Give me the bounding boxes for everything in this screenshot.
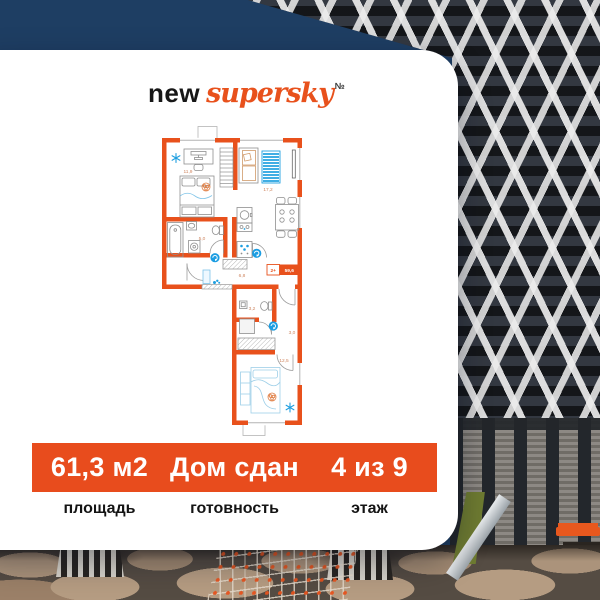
- door-marker[interactable]: [210, 253, 219, 262]
- info-bar: 61,3 м2 Дом сдан 4 из 9: [32, 443, 437, 492]
- bathroom-furniture: [168, 222, 224, 258]
- walls: [162, 138, 302, 425]
- orange-bench: [556, 527, 600, 536]
- floor-value: 4 из 9: [302, 452, 437, 483]
- room-area-label: 6,8: [239, 273, 246, 279]
- climbing-net: [207, 548, 358, 600]
- balcony-bottom: [243, 425, 265, 436]
- area-label: площадь: [32, 500, 167, 518]
- bedroom-1-furniture: [180, 149, 214, 217]
- screenshot-root: new supersky №: [0, 0, 600, 600]
- snowflake-icon: [172, 154, 180, 163]
- kitchen-unit-blue: [262, 151, 280, 183]
- snowflake-icon: [286, 403, 294, 412]
- logo-text-supersky: supersky: [206, 78, 333, 109]
- room-area-label: 12,5: [279, 358, 289, 364]
- logo-trademark: №: [335, 81, 345, 91]
- badge-area: 59,6: [285, 268, 295, 274]
- apartment-badge: 2+ 59,6: [267, 265, 299, 276]
- balcony-top: [198, 127, 217, 139]
- room-area-label: 11,9: [184, 169, 193, 175]
- readiness-label: готовность: [167, 500, 302, 518]
- room-area-label: 3,2: [249, 306, 256, 312]
- area-value: 61,3 м2: [32, 452, 167, 483]
- readiness-value: Дом сдан: [167, 452, 302, 483]
- wardrobe-shelves: [220, 148, 233, 187]
- room-area-label: 3,0: [289, 330, 296, 336]
- logo-text-new: new: [148, 78, 200, 109]
- kitchen-column: [237, 208, 252, 258]
- logo: new supersky №: [148, 78, 345, 109]
- pet-icon: [213, 280, 220, 284]
- pillar-base: [56, 550, 124, 577]
- listing-card[interactable]: new supersky №: [0, 50, 458, 550]
- bedroom-2-furniture: [241, 368, 281, 414]
- floor-plan: 11,9 17,2 5,0 6,8 3,2 3,0 12,5 2+ 59,6: [155, 120, 325, 440]
- info-section: 61,3 м2 Дом сдан 4 из 9 площадь готовнос…: [32, 443, 437, 518]
- info-labels: площадь готовность этаж: [32, 500, 437, 518]
- floor-label: этаж: [302, 500, 437, 518]
- windows: [180, 138, 302, 426]
- door-marker[interactable]: [269, 321, 278, 330]
- door-marker[interactable]: [252, 249, 261, 258]
- room-area-label: 5,0: [199, 236, 206, 242]
- room-area-label: 17,2: [263, 187, 273, 193]
- badge-rooms: 2+: [270, 268, 276, 274]
